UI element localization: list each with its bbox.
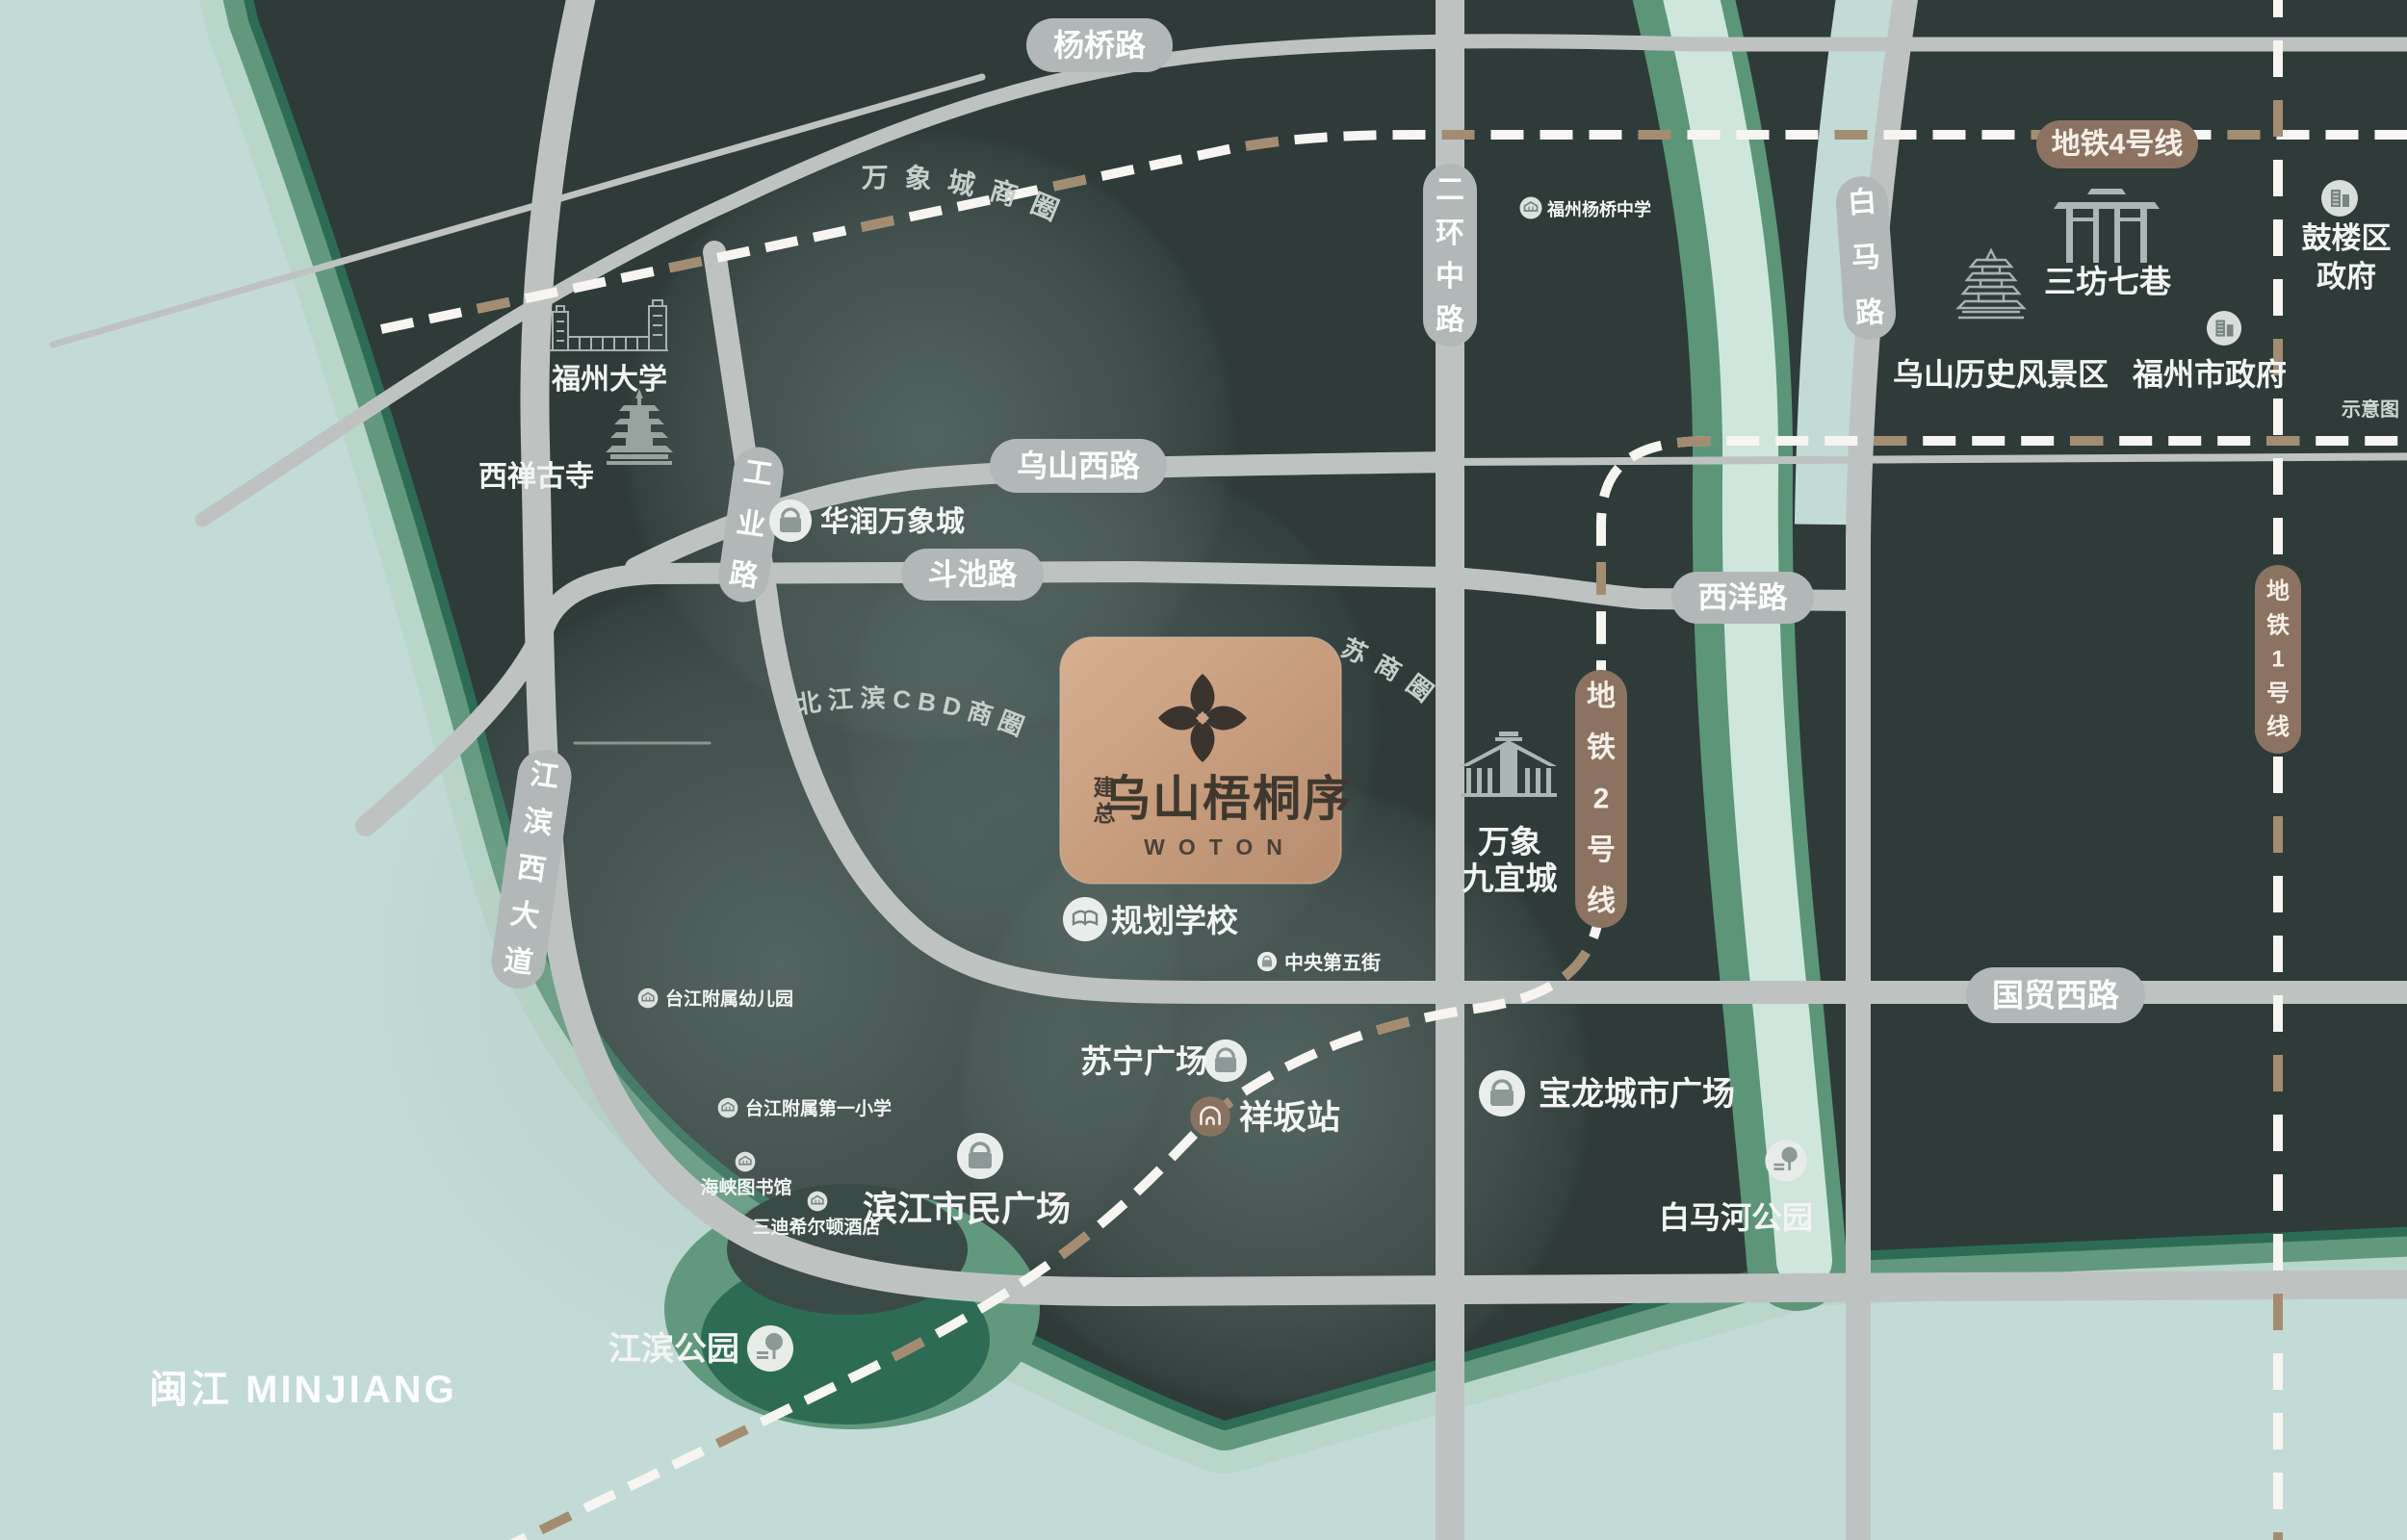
svg-text:二: 二 bbox=[1436, 174, 1464, 206]
school-icon bbox=[808, 1192, 828, 1212]
map-canvas: 万象城商圈北江滨CBD商圈苏商圈 杨桥路二环中路白马路乌山西路工业路斗池路西洋路… bbox=[0, 0, 2407, 1540]
svg-text:大: 大 bbox=[508, 898, 541, 934]
svg-text:鼓楼区: 鼓楼区 bbox=[2302, 221, 2392, 255]
road-label-yangqiaolu: 杨桥路 bbox=[1026, 18, 1173, 72]
svg-text:江: 江 bbox=[528, 758, 560, 794]
svg-text:台江附属幼儿园: 台江附属幼儿园 bbox=[665, 988, 793, 1010]
svg-text:西洋路: 西洋路 bbox=[1698, 581, 1789, 615]
school-icon bbox=[736, 1152, 756, 1172]
svg-text:白: 白 bbox=[1847, 186, 1877, 219]
svg-text:西禅古寺: 西禅古寺 bbox=[479, 461, 594, 493]
svg-text:路: 路 bbox=[1854, 296, 1886, 330]
svg-text:九宜城: 九宜城 bbox=[1462, 860, 1558, 896]
bag-icon bbox=[1257, 952, 1277, 971]
school-icon bbox=[718, 1098, 738, 1118]
svg-text:华润万象城: 华润万象城 bbox=[820, 505, 965, 538]
bag-icon bbox=[769, 500, 812, 542]
svg-text:号: 号 bbox=[2266, 680, 2290, 706]
road-label-douchilu: 斗池路 bbox=[901, 549, 1044, 601]
svg-text:海峡图书馆: 海峡图书馆 bbox=[700, 1176, 791, 1198]
svg-text:规划学校: 规划学校 bbox=[1111, 903, 1238, 938]
svg-text:国贸西路: 国贸西路 bbox=[1992, 978, 2120, 1014]
bag-icon bbox=[1479, 1070, 1525, 1116]
svg-text:业: 业 bbox=[735, 507, 767, 543]
svg-text:铁: 铁 bbox=[2266, 612, 2290, 638]
svg-text:线: 线 bbox=[2266, 714, 2290, 740]
svg-text:杨桥路: 杨桥路 bbox=[1053, 28, 1147, 63]
svg-text:福州大学: 福州大学 bbox=[551, 363, 667, 396]
bag-icon bbox=[957, 1133, 1003, 1179]
svg-text:路: 路 bbox=[727, 558, 761, 594]
svg-text:祥坂站: 祥坂站 bbox=[1239, 1099, 1340, 1137]
svg-text:中央第五街: 中央第五街 bbox=[1284, 951, 1381, 974]
landmark-xiangban-zhan: 祥坂站 bbox=[1190, 1096, 1340, 1137]
metro-label-line4: 地铁4号线 bbox=[2036, 120, 2198, 168]
svg-text:福州杨桥中学: 福州杨桥中学 bbox=[1546, 199, 1651, 219]
gov-icon bbox=[2207, 311, 2241, 346]
svg-text:万象: 万象 bbox=[1478, 824, 1541, 860]
svg-text:宝龙城市广场: 宝龙城市广场 bbox=[1539, 1075, 1735, 1113]
svg-text:号: 号 bbox=[1587, 834, 1616, 866]
book-icon bbox=[1063, 897, 1107, 941]
svg-text:滨: 滨 bbox=[522, 804, 555, 840]
landmark-guihua-xuexiao: 规划学校 bbox=[1063, 897, 1238, 941]
svg-text:工: 工 bbox=[741, 456, 774, 492]
project-logo: 建总 乌山梧桐序 WOTON bbox=[1060, 637, 1353, 884]
road-label-xiyanglu: 西洋路 bbox=[1671, 572, 1814, 624]
metro-label-line2: 地铁2号线 bbox=[1575, 670, 1627, 928]
svg-text:地铁4号线: 地铁4号线 bbox=[2052, 129, 2184, 161]
svg-text:铁: 铁 bbox=[1587, 731, 1616, 763]
minjiang-label: 闽江 MINJIANG bbox=[149, 1369, 457, 1411]
svg-text:中: 中 bbox=[1436, 261, 1464, 293]
logo-name: 乌山梧桐序 bbox=[1102, 772, 1353, 826]
school-icon bbox=[638, 988, 659, 1009]
landmark-jiangbin-gongyuan: 江滨公园 bbox=[608, 1325, 793, 1372]
svg-text:三迪希尔顿酒店: 三迪希尔顿酒店 bbox=[752, 1216, 880, 1238]
svg-text:道: 道 bbox=[502, 944, 534, 980]
school-icon bbox=[1520, 197, 1542, 219]
landmark-suning-guangchang: 苏宁广场 bbox=[1080, 1039, 1247, 1082]
svg-text:西: 西 bbox=[515, 852, 548, 887]
svg-text:台江附属第一小学: 台江附属第一小学 bbox=[745, 1097, 892, 1119]
location-map: 万象城商圈北江滨CBD商圈苏商圈 杨桥路二环中路白马路乌山西路工业路斗池路西洋路… bbox=[0, 0, 2407, 1540]
bag-icon bbox=[1204, 1039, 1247, 1082]
svg-text:线: 线 bbox=[1587, 885, 1616, 917]
svg-text:乌山西路: 乌山西路 bbox=[1017, 449, 1141, 483]
svg-text:地: 地 bbox=[1587, 680, 1616, 712]
road-label-erhuanzhonglu: 二环中路 bbox=[1423, 164, 1477, 346]
svg-text:苏宁广场: 苏宁广场 bbox=[1080, 1043, 1207, 1079]
svg-text:乌山历史风景区: 乌山历史风景区 bbox=[1893, 357, 2109, 392]
svg-text:马: 马 bbox=[1851, 241, 1881, 274]
metro-label-line1: 地铁1号线 bbox=[2255, 565, 2301, 754]
svg-text:2: 2 bbox=[1593, 783, 1610, 815]
svg-text:环: 环 bbox=[1436, 218, 1464, 249]
road-label-wushanxilu: 乌山西路 bbox=[990, 439, 1167, 493]
svg-text:白马河公园: 白马河公园 bbox=[1659, 1200, 1813, 1235]
svg-text:三坊七巷: 三坊七巷 bbox=[2044, 264, 2172, 299]
tree-icon bbox=[1765, 1140, 1806, 1181]
svg-text:1: 1 bbox=[2271, 647, 2284, 673]
svg-text:路: 路 bbox=[1436, 304, 1465, 336]
metro-icon bbox=[1190, 1096, 1230, 1137]
svg-text:江滨公园: 江滨公园 bbox=[608, 1331, 739, 1368]
svg-text:地: 地 bbox=[2266, 578, 2290, 604]
landmark-huarun-wanxiangcheng: 华润万象城 bbox=[769, 500, 965, 542]
svg-text:政府: 政府 bbox=[2316, 260, 2376, 294]
svg-text:斗池路: 斗池路 bbox=[928, 558, 1019, 592]
schematic-note: 示意图 bbox=[2342, 398, 2399, 421]
gov-icon bbox=[2321, 180, 2358, 217]
svg-text:滨江市民广场: 滨江市民广场 bbox=[863, 1189, 1071, 1228]
logo-name-en: WOTON bbox=[1144, 834, 1296, 860]
tree-icon bbox=[747, 1325, 793, 1372]
svg-text:福州市政府: 福州市政府 bbox=[2132, 357, 2287, 392]
road-label-guomaoxilu: 国贸西路 bbox=[1966, 967, 2145, 1023]
landmark-baolong-chengshi-guangchang: 宝龙城市广场 bbox=[1479, 1070, 1735, 1116]
